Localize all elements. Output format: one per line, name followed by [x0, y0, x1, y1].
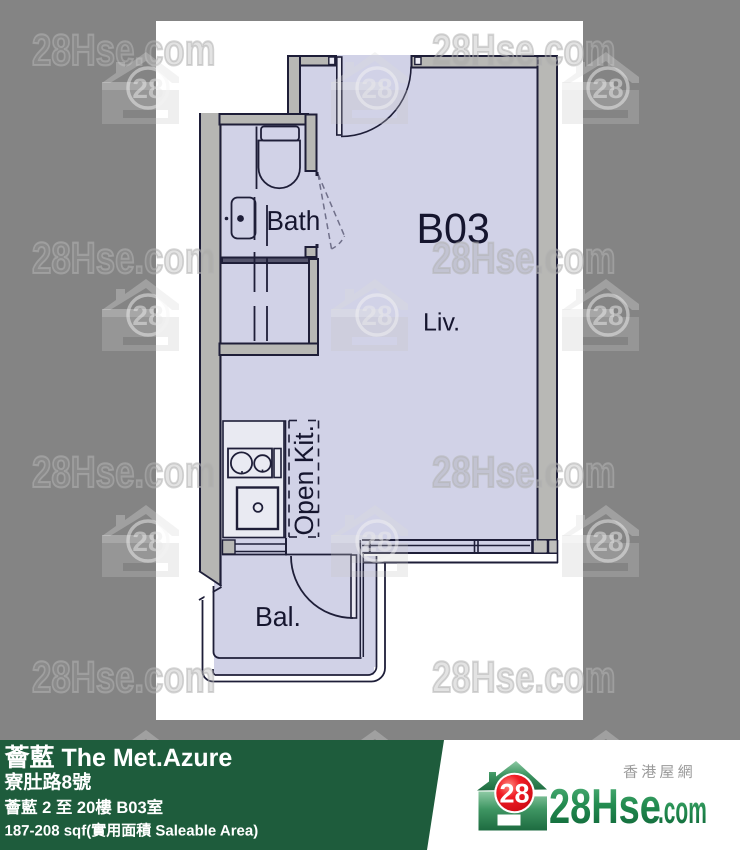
svg-text:香港屋網: 香港屋網 [623, 764, 696, 781]
svg-text:.com: .com [658, 790, 707, 832]
svg-text:Liv.: Liv. [423, 309, 460, 337]
svg-text:Open Kit.: Open Kit. [289, 425, 319, 535]
svg-text:薈藍 The Met.Azure: 薈藍 The Met.Azure [5, 744, 233, 772]
svg-text:Bath: Bath [267, 205, 321, 236]
svg-text:28: 28 [499, 779, 529, 809]
svg-text:Bal.: Bal. [255, 601, 301, 632]
svg-text:寮肚路8號: 寮肚路8號 [4, 772, 92, 794]
svg-text:薈藍 2 至 20樓 B03室: 薈藍 2 至 20樓 B03室 [4, 798, 164, 817]
svg-text:187-208 sqf(實用面積 Saleable Area: 187-208 sqf(實用面積 Saleable Area) [5, 822, 259, 840]
svg-text:28Hse: 28Hse [549, 780, 661, 834]
